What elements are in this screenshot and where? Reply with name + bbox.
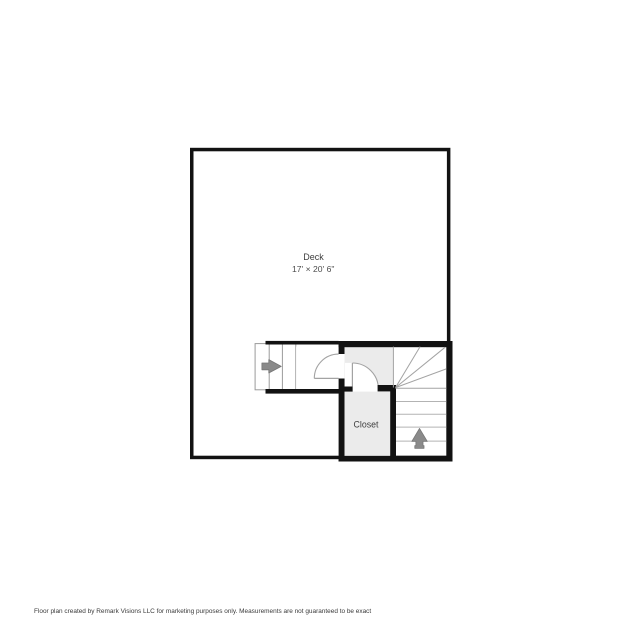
svg-text:Floor plan created by Remark V: Floor plan created by Remark Visions LLC… [34,608,371,615]
svg-text:Closet: Closet [354,419,379,429]
svg-text:17' × 20' 6": 17' × 20' 6" [292,264,334,274]
svg-text:Deck: Deck [303,252,324,262]
